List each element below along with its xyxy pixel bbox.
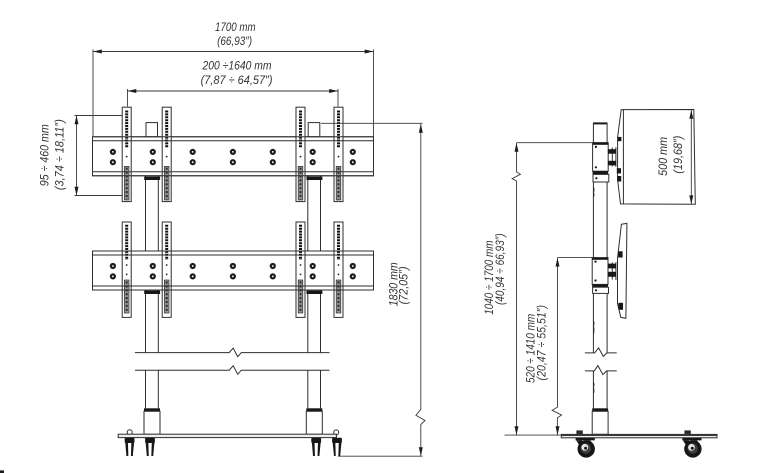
svg-text:(3,74 ÷ 18,11″): (3,74 ÷ 18,11″) [52,119,66,190]
svg-text:(7,87 ÷ 64,57″): (7,87 ÷ 64,57″) [201,73,273,87]
svg-text:1700 mm: 1700 mm [215,20,256,34]
svg-text:(20,47 ÷ 55,51″): (20,47 ÷ 55,51″) [534,305,548,381]
svg-text:(40,94 ÷ 66,93″): (40,94 ÷ 66,93″) [493,233,507,305]
svg-text:95 ÷ 460 mm: 95 ÷ 460 mm [38,124,52,186]
svg-text:200 ÷1640 mm: 200 ÷1640 mm [202,59,272,73]
svg-text:500 mm: 500 mm [656,137,670,176]
svg-text:(19,68″): (19,68″) [671,136,685,174]
svg-text:(66,93″): (66,93″) [217,34,252,48]
svg-text:(72,05″): (72,05″) [396,266,410,304]
